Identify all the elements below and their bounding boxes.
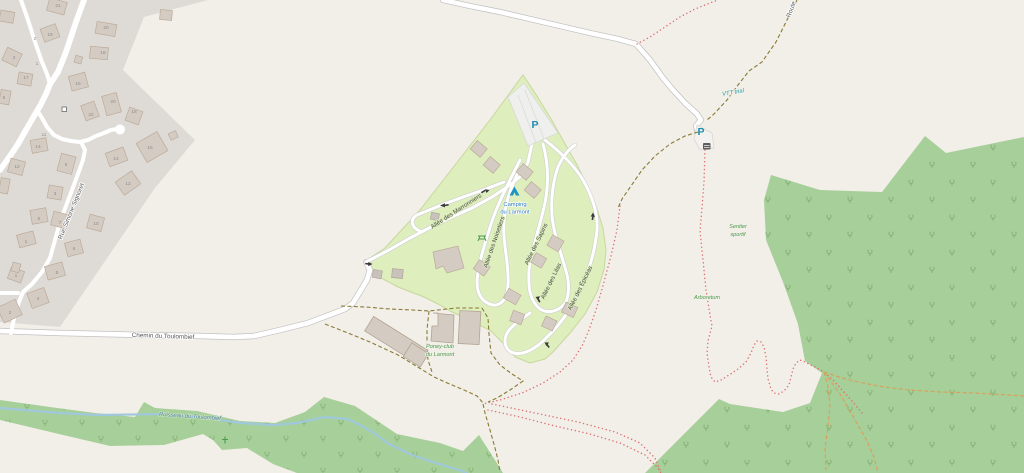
svg-text:2: 2: [34, 36, 37, 42]
svg-text:18: 18: [100, 50, 106, 56]
svg-text:11: 11: [42, 132, 47, 138]
svg-text:4: 4: [37, 296, 40, 302]
svg-text:14: 14: [35, 144, 41, 150]
svg-text:12: 12: [125, 181, 131, 187]
svg-text:20: 20: [103, 25, 109, 31]
svg-text:10: 10: [93, 221, 99, 227]
svg-text:du Larmont: du Larmont: [500, 210, 530, 216]
svg-text:1: 1: [25, 239, 28, 245]
svg-text:du Larmont: du Larmont: [426, 352, 455, 358]
svg-text:7: 7: [59, 220, 62, 226]
svg-text:3: 3: [13, 55, 16, 61]
svg-text:5: 5: [56, 270, 59, 276]
svg-text:P: P: [697, 126, 704, 138]
svg-text:P: P: [531, 119, 538, 131]
svg-text:21: 21: [55, 3, 61, 9]
svg-text:1: 1: [36, 61, 39, 67]
svg-text:12: 12: [14, 164, 20, 170]
svg-text:Poney-club: Poney-club: [426, 344, 454, 350]
svg-text:Sentier: Sentier: [729, 224, 748, 230]
svg-text:5: 5: [3, 95, 6, 101]
svg-text:1: 1: [15, 273, 18, 279]
svg-text:16: 16: [75, 81, 81, 87]
svg-text:16: 16: [147, 145, 153, 151]
svg-text:5: 5: [38, 216, 41, 222]
svg-text:17: 17: [23, 75, 29, 81]
svg-text:Camping: Camping: [503, 202, 526, 208]
svg-text:2: 2: [9, 310, 12, 316]
svg-text:3: 3: [54, 191, 57, 197]
svg-text:9: 9: [65, 162, 68, 168]
svg-text:20: 20: [110, 99, 116, 105]
svg-text:18: 18: [131, 109, 137, 115]
svg-text:6: 6: [73, 246, 76, 252]
svg-text:14: 14: [113, 156, 119, 162]
svg-text:Arboretum: Arboretum: [693, 295, 720, 301]
svg-text:sportif: sportif: [730, 232, 747, 238]
svg-text:22: 22: [88, 112, 94, 118]
svg-text:19: 19: [47, 32, 53, 38]
